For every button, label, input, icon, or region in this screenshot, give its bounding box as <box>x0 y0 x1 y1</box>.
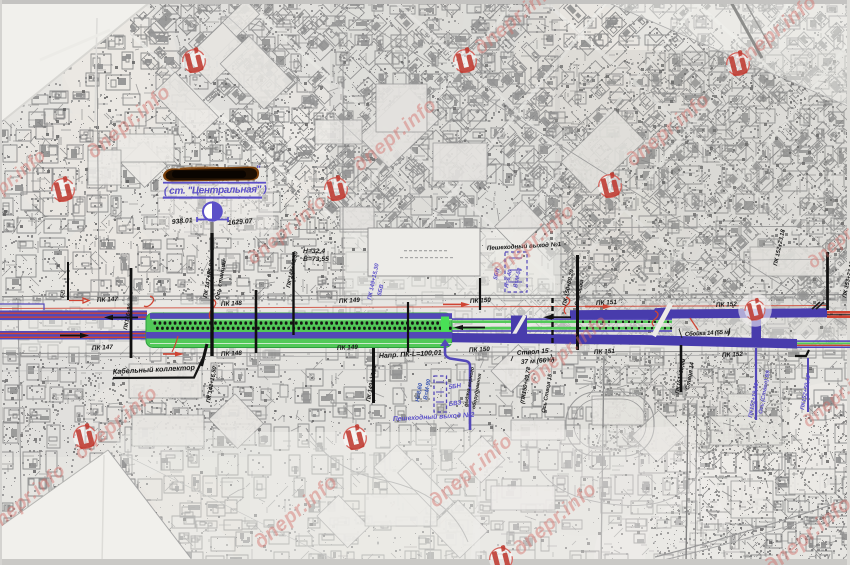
svg-text:ПК 147: ПК 147 <box>92 344 114 352</box>
svg-text:ПК 149: ПК 149 <box>339 297 361 305</box>
svg-text:ПК 147: ПК 147 <box>97 296 119 304</box>
svg-text:": " <box>256 164 261 174</box>
svg-text:ПК 151: ПК 151 <box>596 299 618 307</box>
svg-text:ПК 148: ПК 148 <box>221 300 243 308</box>
svg-text:ПК 152: ПК 152 <box>716 301 738 309</box>
svg-text:ПК 151: ПК 151 <box>594 348 616 356</box>
svg-text:ПК 149: ПК 149 <box>337 344 359 352</box>
svg-text:Н=32,4: Н=32,4 <box>303 248 325 255</box>
svg-text:ПК 148: ПК 148 <box>221 350 243 358</box>
svg-text:ПК 150: ПК 150 <box>470 297 492 305</box>
svg-text:( ст. "Центральная" ): ( ст. "Центральная" ) <box>164 184 268 197</box>
svg-text:ПК 152: ПК 152 <box>722 351 744 359</box>
svg-text:ПК 150: ПК 150 <box>469 346 491 354</box>
svg-text:В=73,55: В=73,55 <box>303 256 329 263</box>
